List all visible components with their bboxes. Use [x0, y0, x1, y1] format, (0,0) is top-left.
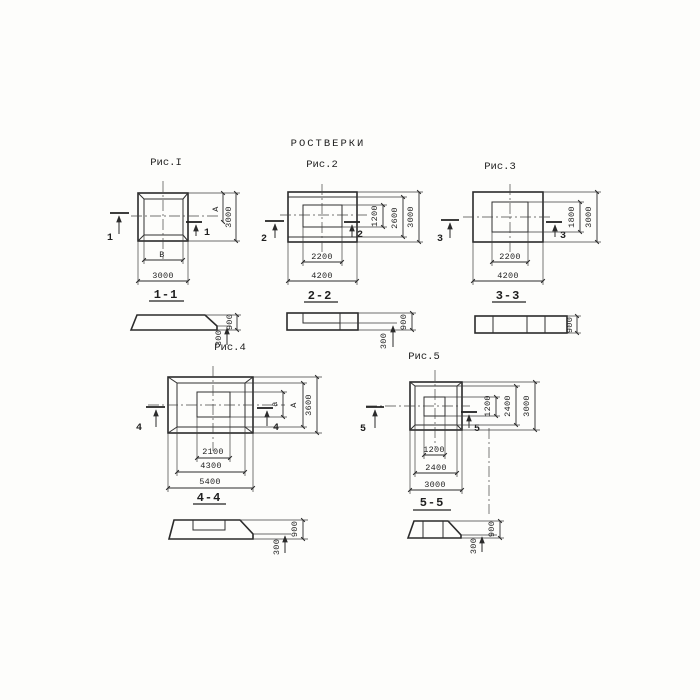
figure-2-dim-bottom-outer: 4200: [311, 271, 333, 281]
section-4-4-dim-total: 900: [290, 521, 300, 537]
figure-3-cut-number-left: 3: [437, 234, 443, 245]
figure-1-cut-number-right: 1: [204, 228, 210, 239]
figure-2: Рис.2 2 2 1200 2600: [261, 159, 423, 349]
figure-1-dim-right-inner: А: [211, 206, 221, 212]
figure-5-cut-number-left: 5: [360, 424, 366, 435]
section-1-1-dim-total: 900: [225, 314, 235, 330]
section-4-4-dim-step: 300: [272, 539, 282, 555]
figure-5-dim-right-mid: 2400: [503, 395, 513, 417]
figure-5-dim-bottom-inner: 1200: [423, 445, 445, 455]
figure-2-dim-right-inner: 1200: [370, 205, 380, 227]
figure-3-cut-number-right: 3: [560, 231, 566, 242]
figure-1-dim-bottom-outer: 3000: [152, 271, 174, 281]
section-3-3-dim-total: 900: [565, 317, 575, 333]
figure-4: Рис.4 4 4 а А: [136, 342, 322, 555]
figure-5: Рис.5 5 5 1200: [360, 351, 540, 554]
figure-3-caption: Рис.3: [484, 161, 516, 173]
grillage-technical-drawing: РОСТВЕРКИ Рис.I 1 1 А 3000: [0, 0, 700, 700]
figure-1-cut-number-left: 1: [107, 233, 113, 244]
figure-2-dim-right-mid: 2600: [390, 207, 400, 229]
section-5-5-title: 5-5: [420, 496, 445, 510]
figure-1-dim-bottom-inner: В: [159, 250, 164, 260]
figure-3-dim-bottom-outer: 4200: [497, 271, 519, 281]
figure-3-dim-right-inner: 1800: [567, 206, 577, 228]
figure-2-cut-number-right: 2: [357, 230, 363, 241]
figure-3-dim-right-outer: 3000: [584, 206, 594, 228]
section-2-2-title: 2-2: [308, 289, 333, 303]
figure-1-caption: Рис.I: [150, 157, 182, 169]
figure-5-plan-geometry: [366, 370, 489, 514]
figure-5-dim-right-inner: 1200: [483, 395, 493, 417]
figure-4-dim-bottom-mid: 4300: [200, 461, 222, 471]
section-3-3-title: 3-3: [496, 289, 521, 303]
figure-4-cut-number-left: 4: [136, 423, 142, 434]
figure-5-dim-right-outer: 3000: [522, 395, 532, 417]
figure-5-caption: Рис.5: [408, 351, 440, 363]
figure-2-plan-geometry: [280, 184, 370, 253]
section-2-2-drawing: 900 300: [287, 313, 416, 349]
section-2-2-dim-total: 900: [399, 314, 409, 330]
section-5-5-dim-step: 300: [469, 538, 479, 554]
section-2-2-dim-step: 300: [379, 333, 389, 349]
section-1-1-title: 1-1: [154, 288, 179, 302]
figure-2-caption: Рис.2: [306, 159, 338, 171]
drawing-sheet: РОСТВЕРКИ Рис.I 1 1 А 3000: [0, 0, 700, 700]
section-5-5-dim-total: 900: [487, 521, 497, 537]
figure-4-dim-bottom-outer: 5400: [199, 477, 221, 487]
figure-3-dim-bottom-inner: 2200: [499, 252, 521, 262]
figure-2-dim-bottom-inner: 2200: [311, 252, 333, 262]
figure-5-dim-bottom-outer: 3000: [424, 480, 446, 490]
figure-1-dimensions: А 3000 В 3000: [138, 193, 240, 285]
figure-1-dim-right-outer: 3000: [224, 206, 234, 228]
section-3-3-drawing: 900: [475, 316, 581, 333]
figure-2-dimensions: 1200 2600 3000 2200 4200: [288, 192, 423, 285]
figure-4-dim-bottom-inner: 2100: [202, 447, 224, 457]
figure-1: Рис.I 1 1 А 3000: [107, 157, 241, 346]
figure-4-cut-number-right: 4: [273, 423, 279, 434]
section-4-4-drawing: 900 300: [169, 520, 308, 555]
figure-4-dim-right-inner: а: [270, 401, 280, 406]
figure-2-dim-right-outer: 3000: [406, 206, 416, 228]
figure-5-cut-number-right: 5: [474, 424, 480, 435]
section-5-5-drawing: 900 300: [408, 521, 504, 554]
figure-4-dim-right-mid: А: [289, 402, 299, 408]
figure-2-cut-number-left: 2: [261, 234, 267, 245]
figure-4-cut-marks: 4 4: [136, 407, 279, 434]
figure-5-dim-bottom-mid: 2400: [425, 463, 447, 473]
figure-5-dimensions: 1200 2400 3000 1200 2400 3000: [410, 382, 540, 494]
figure-4-dim-right-outer: 3600: [304, 394, 314, 416]
figure-1-cut-marks: 1 1: [107, 213, 210, 244]
sheet-title: РОСТВЕРКИ: [291, 138, 366, 150]
figure-3: Рис.3 3 3 1800 3000 2200: [437, 161, 601, 333]
figure-4-caption: Рис.4: [214, 342, 246, 354]
section-4-4-title: 4-4: [197, 491, 222, 505]
figure-3-plan-geometry: [463, 184, 552, 253]
